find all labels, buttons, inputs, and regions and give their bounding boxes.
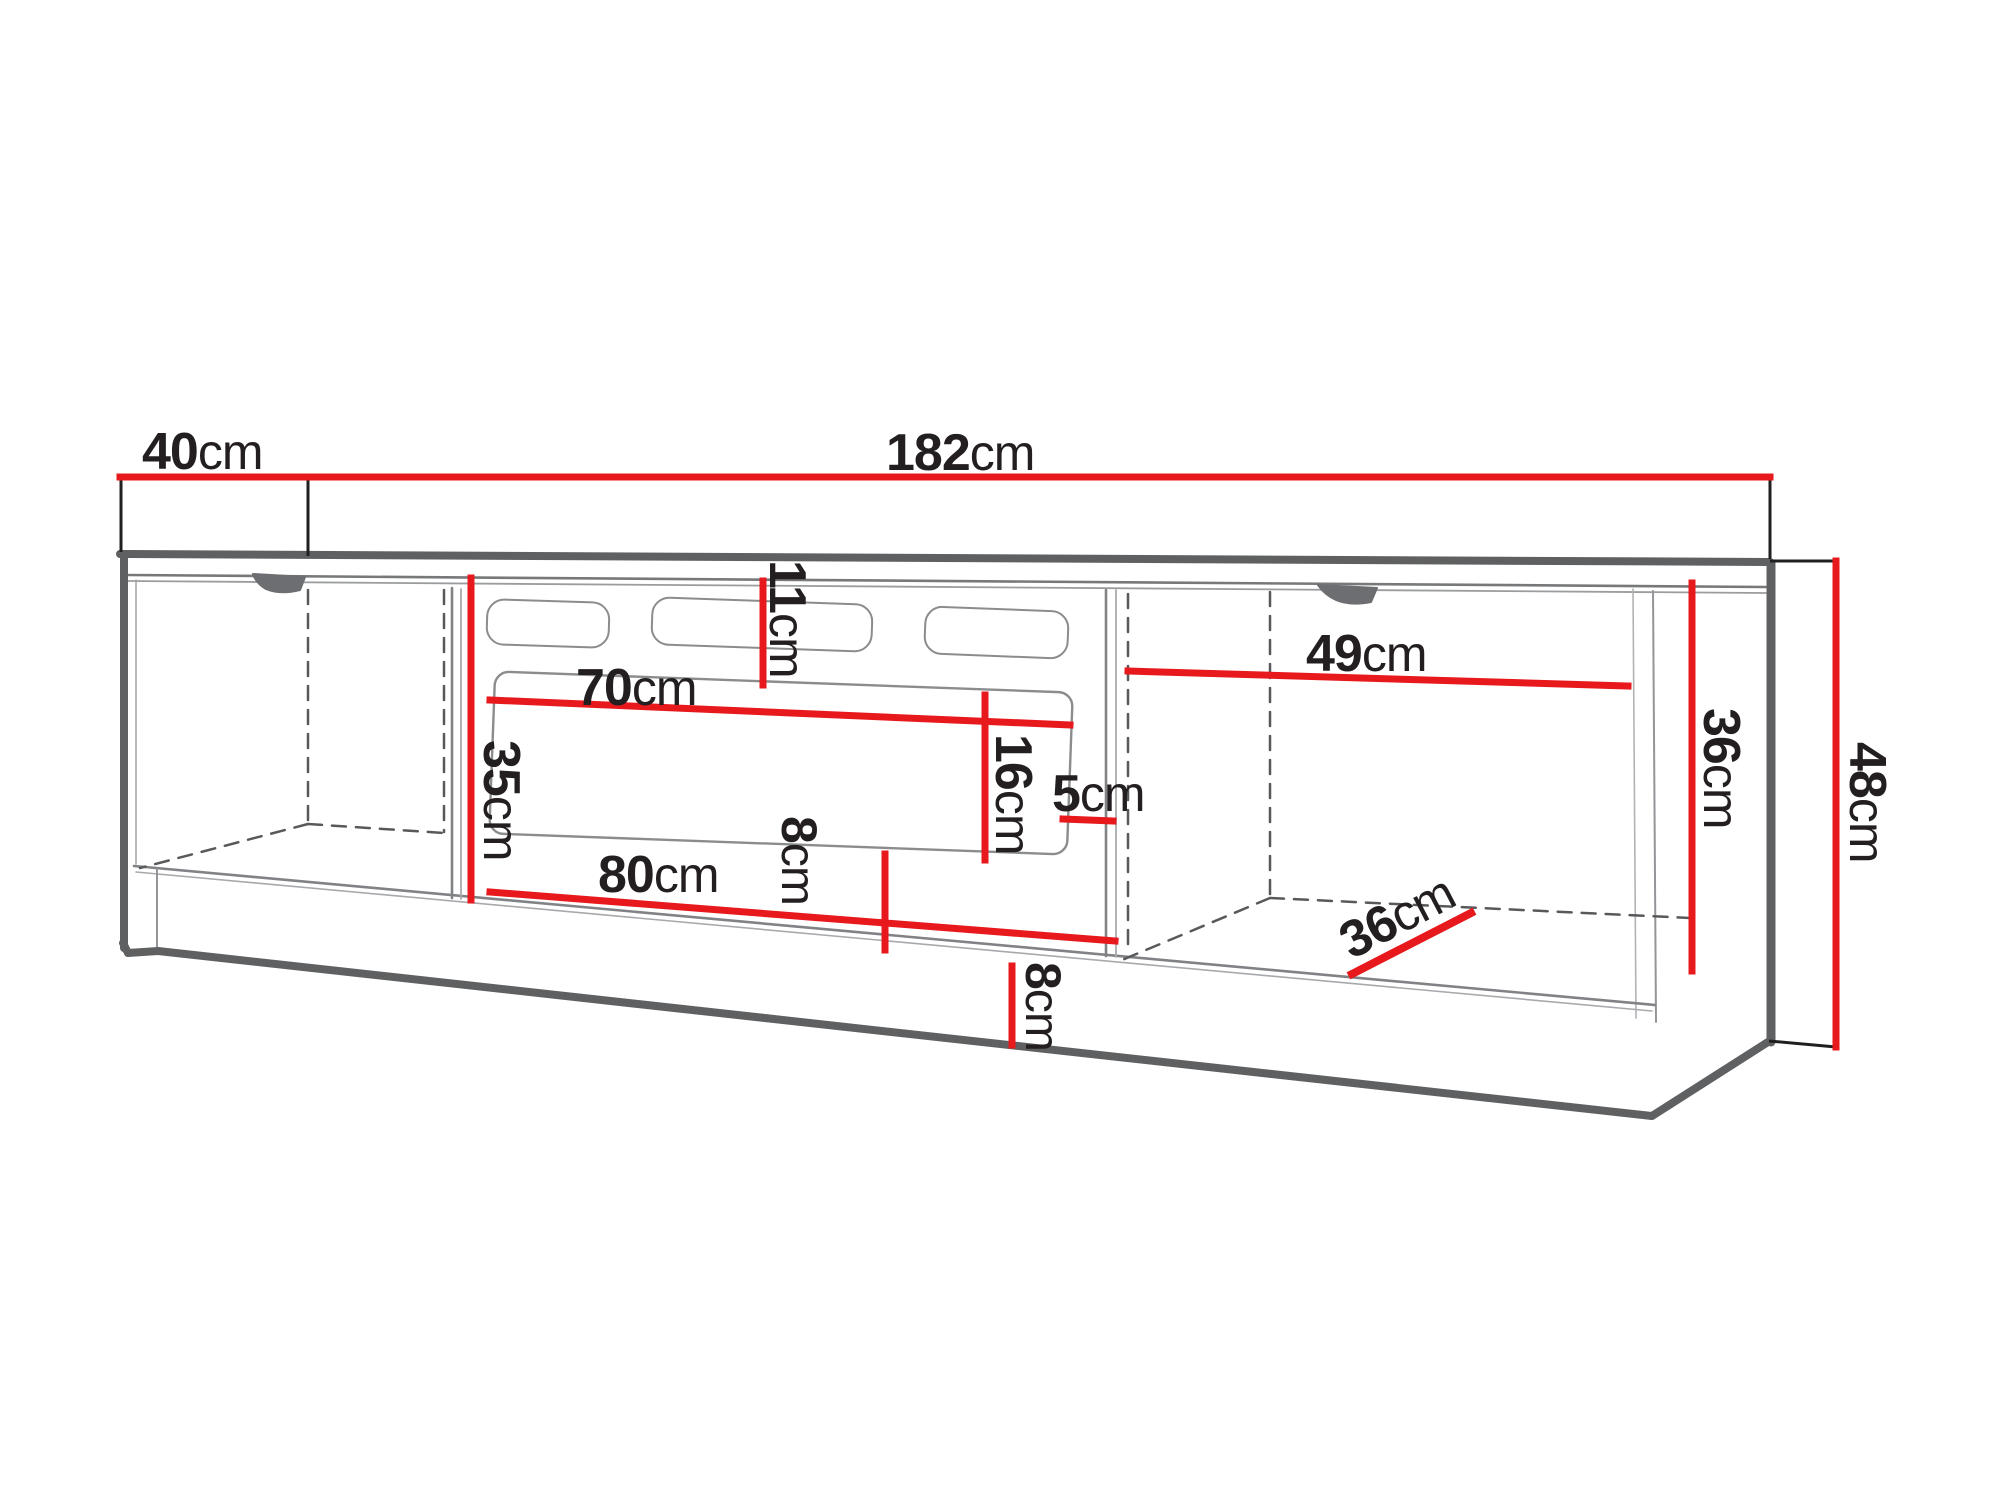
right-compartment-floor-back [1270,898,1690,918]
right-compartment-floor-left [1122,898,1270,960]
cabinet-top-edge [120,554,1768,562]
left-handle-icon [253,574,305,592]
label-total-width: 182cm [886,424,1034,482]
label-opening-width: 70cm [576,659,697,717]
dimension-labels: 40cm 182cm 49cm 11cm 70cm 35cm 16cm 5cm … [142,423,1896,1051]
furniture-dimension-diagram: 40cm 182cm 49cm 11cm 70cm 35cm 16cm 5cm … [0,0,2000,1500]
right-panel-inner-line-1 [1633,589,1636,1018]
cabinet-outline [120,554,1771,1116]
label-middle-section-height: 35cm [472,740,530,861]
label-plinth-height: 8cm [1015,962,1071,1051]
cabinet-ceiling-line [127,581,1766,593]
vent-slot-3 [924,606,1069,658]
label-middle-section-width: 80cm [598,846,719,904]
right-panel-inner-line-2 [1653,591,1656,1022]
cabinet-top-front-edge [127,575,1766,587]
extension-right-bottom-tick [1769,1041,1836,1047]
label-opening-height: 16cm [984,734,1042,855]
label-total-height: 48cm [1838,742,1896,863]
label-top-clearance: 11cm [758,560,816,678]
left-compartment-floor-left [140,824,308,868]
label-right-section-width: 49cm [1306,625,1427,683]
label-side-gap: 5cm [1052,765,1145,823]
label-right-section-height: 36cm [1692,708,1750,829]
vent-slot-1 [486,599,609,648]
diagram-canvas: 40cm 182cm 49cm 11cm 70cm 35cm 16cm 5cm … [0,0,2000,1500]
left-compartment-floor-back [308,824,444,833]
plinth-outline [123,943,1768,1116]
label-depth: 40cm [142,423,263,481]
label-opening-floor-gap: 8cm [771,816,827,905]
right-handle-icon [1318,585,1377,604]
